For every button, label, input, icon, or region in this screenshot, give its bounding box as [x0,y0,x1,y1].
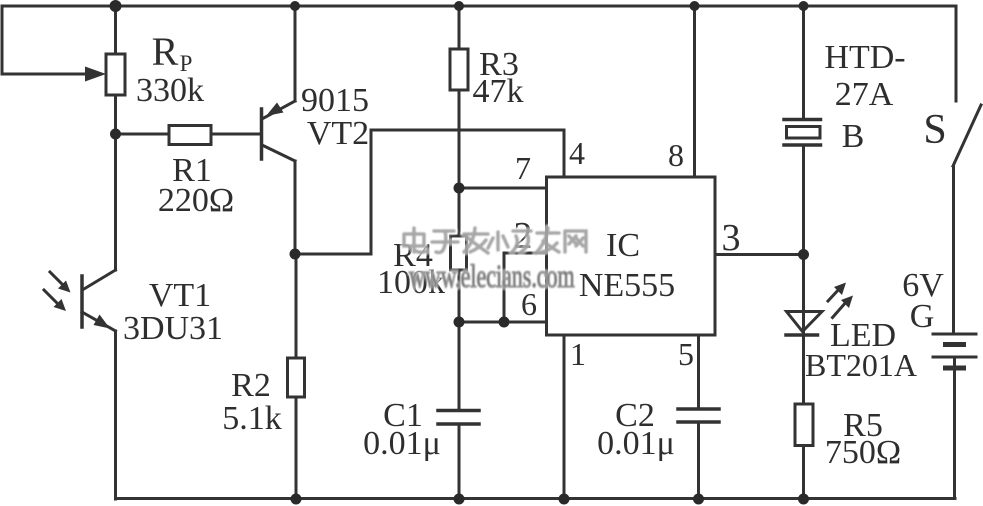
svg-text:5: 5 [678,336,694,372]
svg-text:27A: 27A [835,76,894,113]
svg-text:0.01μ: 0.01μ [363,425,441,462]
svg-text:NE555: NE555 [579,267,675,304]
svg-text:VT1: VT1 [149,277,211,314]
svg-text:8: 8 [668,137,684,173]
svg-text:4: 4 [569,135,585,171]
svg-text:47k: 47k [473,73,524,110]
svg-text:VT2: VT2 [307,115,369,152]
svg-text:R: R [152,29,179,74]
svg-text:750Ω: 750Ω [825,434,901,471]
svg-text:B: B [842,118,865,155]
svg-text:5.1k: 5.1k [222,400,282,437]
svg-text:9015: 9015 [301,82,369,119]
svg-text:7: 7 [515,150,531,186]
svg-text:330k: 330k [136,72,204,109]
svg-text:3DU31: 3DU31 [123,310,223,347]
svg-text:220Ω: 220Ω [158,182,234,219]
svg-text:www.elecians.com: www.elecians.com [409,258,575,294]
svg-text:1: 1 [570,336,586,372]
svg-text:IC: IC [606,227,640,264]
svg-text:HTD-: HTD- [824,39,905,76]
svg-text:S: S [923,107,946,153]
svg-text:G: G [910,298,935,335]
svg-text:3: 3 [722,217,741,259]
svg-text:R2: R2 [231,367,271,404]
svg-text:BT201A: BT201A [805,347,917,383]
svg-text:0.01μ: 0.01μ [597,425,675,462]
